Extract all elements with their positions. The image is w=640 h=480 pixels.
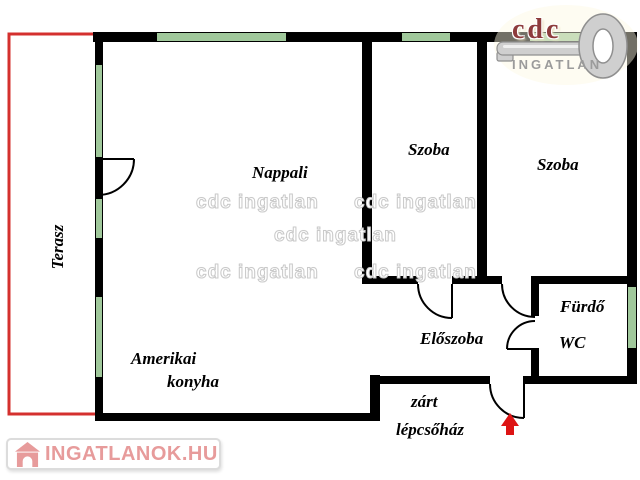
room-label-eloszoba: Előszoba xyxy=(420,329,483,349)
room-label-kitchen-2: konyha xyxy=(167,372,219,392)
site-logo-badge: INGATLANOK.HU xyxy=(6,438,221,470)
wall-bottom-left xyxy=(95,413,380,421)
wall-lower-mid-left xyxy=(370,376,490,384)
site-logo-text: INGATLANOK.HU xyxy=(45,443,218,466)
wall-lower-mid-right xyxy=(523,376,637,384)
window-left-1 xyxy=(96,65,102,157)
wall-bath-left-bottom xyxy=(531,348,539,384)
watermark: cdc ingatlan xyxy=(354,192,477,214)
room-label-wc: WC xyxy=(559,333,585,353)
watermark: cdc ingatlan xyxy=(354,262,477,284)
terrace-door-arc xyxy=(98,159,134,195)
window-top-1 xyxy=(157,33,286,41)
wall-nappali-szoba xyxy=(362,42,372,284)
room-label-nappali: Nappali xyxy=(252,163,308,183)
window-top-2 xyxy=(402,33,450,41)
window-left-2 xyxy=(96,199,102,238)
cdc-logo-text: cdc xyxy=(512,14,561,46)
watermark: cdc ingatlan xyxy=(196,192,319,214)
room-label-stairwell-2: lépcsőház xyxy=(396,420,464,440)
room-label-stairwell-1: zárt xyxy=(411,392,437,412)
watermark: cdc ingatlan xyxy=(196,262,319,284)
room-label-szoba-1: Szoba xyxy=(408,140,450,160)
wall-hall-c xyxy=(533,276,637,284)
room-label-furdo: Fürdő xyxy=(560,297,604,317)
house-icon xyxy=(15,442,40,467)
wall-bath-left-top xyxy=(531,276,539,316)
szoba1-door-arc xyxy=(418,284,452,318)
watermark: cdc ingatlan xyxy=(274,225,397,247)
szoba2-door-arc xyxy=(502,284,535,317)
floorplan-image: cdc ingatlan cdc ingatlan cdc ingatlan c… xyxy=(0,0,640,480)
room-label-szoba-2: Szoba xyxy=(537,155,579,175)
room-label-terasz: Terasz xyxy=(48,212,68,282)
window-left-3 xyxy=(96,297,102,377)
wc-door-arc xyxy=(507,321,535,349)
window-right-1 xyxy=(628,287,636,348)
entrance-door-arc xyxy=(490,384,524,418)
room-label-kitchen-1: Amerikai xyxy=(131,349,196,369)
cdc-logo-tagline: INGATLAN xyxy=(512,57,602,72)
wall-szoba-szoba xyxy=(477,42,487,276)
